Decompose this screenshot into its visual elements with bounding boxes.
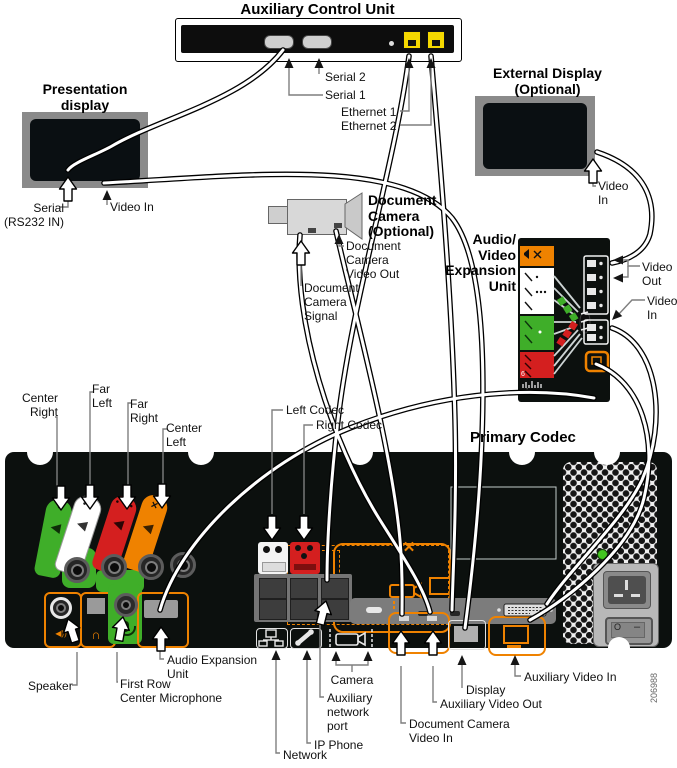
tag-dots: ● ● ● <box>114 499 134 511</box>
left-codec-module <box>258 542 288 574</box>
codec-notch <box>347 439 373 465</box>
camera-label: Camera <box>326 673 378 687</box>
cisco-logo: cisco <box>522 388 542 397</box>
acu-serial2-label: Serial 2 <box>325 70 366 84</box>
acu-ethernet2-label: Ethernet 2 <box>341 119 396 133</box>
acu-title: Auxiliary Control Unit <box>175 2 460 19</box>
power-switch-off-mark: O <box>614 622 621 632</box>
external-display-monitor <box>475 96 595 176</box>
aveu-video-in-label: Video In <box>647 294 677 322</box>
aux-video-out-port <box>427 616 437 621</box>
first-row-mic-port <box>114 593 138 617</box>
aveu-title: Audio/ Video Expansion Unit <box>438 232 516 295</box>
external-video-in-label: Video In <box>598 179 628 207</box>
acu-ethernet2-port <box>427 31 445 49</box>
speaker-port <box>50 597 72 619</box>
transfer-arrows-icon: ↔ <box>137 628 185 642</box>
codec-notch <box>608 637 630 659</box>
acu-serial2-port <box>302 35 332 49</box>
acu-chassis <box>175 18 462 62</box>
speaker-cone-icon: ◀ <box>141 518 155 536</box>
aveu-video-out-label: Video Out <box>642 260 672 288</box>
presentation-screen <box>30 119 140 181</box>
external-display-screen <box>483 103 587 169</box>
figure-number: 206988 <box>649 673 660 703</box>
doccam-video-in-label: Document Camera Video In <box>409 717 510 745</box>
rj45-port <box>290 599 318 620</box>
acu-serial1-port <box>264 35 294 49</box>
display-port-box <box>448 620 486 650</box>
speaker-label: Speaker <box>28 679 73 693</box>
power-module: O – <box>593 563 659 647</box>
rj45-port <box>290 578 318 599</box>
acu-ethernet1-port <box>403 31 421 49</box>
aveu-white-block <box>520 268 554 314</box>
codec-notch <box>27 439 53 465</box>
center-left-label: Center Left <box>166 421 202 449</box>
doccam-lens <box>268 206 289 224</box>
display-port <box>454 626 478 642</box>
doccam-body <box>287 199 347 235</box>
power-switch-on-mark: – <box>634 621 640 633</box>
aux-video-in-port <box>503 625 529 644</box>
mic-connector <box>64 557 90 583</box>
doccam-in-auxout-box <box>388 612 450 654</box>
rj45-port <box>259 578 287 599</box>
ip-phone-port-box <box>290 628 322 649</box>
aveu-green-block <box>520 316 554 350</box>
tag-dots: ● <box>57 504 63 511</box>
doccam-hood <box>345 193 362 239</box>
headphone-port <box>87 598 105 614</box>
rj45-port <box>321 599 349 620</box>
doccam-signal-port <box>308 228 316 233</box>
acu-serial1-label: Serial 1 <box>325 88 366 102</box>
orange-x-mark: ✕ <box>399 538 419 556</box>
presentation-title: Presentation display <box>15 82 155 113</box>
far-right-label: Far Right <box>130 397 158 425</box>
left-codec-label: Left Codec <box>286 403 344 417</box>
doccam-video-out-label: Document Camera Video Out <box>346 239 401 281</box>
aux-network-label: Auxiliary network port <box>327 691 372 733</box>
right-codec-label: Right Codec <box>316 418 382 432</box>
presentation-monitor <box>22 112 148 188</box>
acu-led <box>389 41 394 46</box>
power-led <box>597 549 608 560</box>
speaker-cone-icon: ◀ <box>111 514 125 532</box>
doccam-video-out-port <box>334 223 342 228</box>
cabling-diagram: Auxiliary Control Unit Serial 2 Serial 1… <box>0 0 677 768</box>
primary-codec-title: Primary Codec <box>470 430 576 447</box>
aveu-orange-block <box>520 246 554 266</box>
mic-connector <box>138 554 164 580</box>
rj45-port-aux-network <box>321 578 349 599</box>
codec-notch <box>594 439 620 465</box>
doccam-signal-label: Document Camera Signal <box>304 281 359 323</box>
presentation-serial-label: Serial (RS232 IN) <box>0 201 64 229</box>
rj45-port <box>259 599 287 620</box>
power-inlet <box>603 571 651 609</box>
far-left-label: Far Left <box>92 382 112 410</box>
speaker-cone-icon: ◀ <box>75 515 89 533</box>
acu-ethernet1-label: Ethernet 1 <box>341 105 396 119</box>
audio-expansion-label: Audio Expansion Unit <box>167 653 257 681</box>
display-label: Display <box>466 683 505 697</box>
ip-phone-label: IP Phone <box>314 738 363 752</box>
aux-video-out-label: Auxiliary Video Out <box>440 697 542 711</box>
aux-video-in-box <box>488 616 546 656</box>
speaker-out-icon: ◀)) <box>44 629 78 638</box>
headphone-icon: ∩ <box>80 627 112 642</box>
aveu-red-block <box>520 352 554 378</box>
aux-video-in-label: Auxiliary Video In <box>524 670 617 684</box>
tag-x-icon: ✕ <box>149 499 161 512</box>
doccam-video-in-port <box>399 616 409 621</box>
audio-expansion-port <box>144 600 178 618</box>
external-display-title: External Display (Optional) <box>455 66 640 97</box>
speaker-cone-icon: ◀ <box>49 519 62 537</box>
right-codec-module <box>290 542 320 574</box>
aveu-port-six: 6 <box>521 371 525 379</box>
tag-dots: ● ● <box>82 501 95 510</box>
center-right-label: Center Right <box>12 391 58 419</box>
bar-port <box>450 611 460 616</box>
mic-connector <box>170 552 196 578</box>
presentation-video-in-label: Video In <box>110 200 154 214</box>
mic-connector <box>101 554 127 580</box>
network-port-box <box>256 628 288 649</box>
